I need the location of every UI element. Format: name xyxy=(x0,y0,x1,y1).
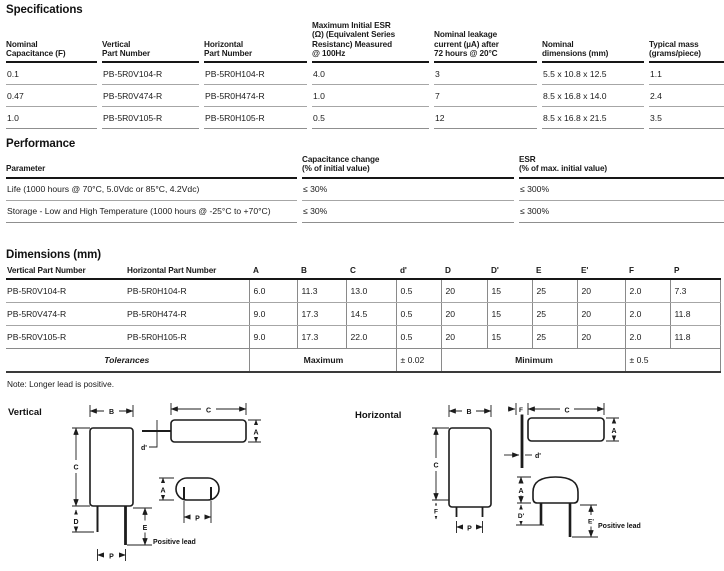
dimensions-title: Dimensions (mm) xyxy=(6,249,719,261)
dimensions-cell: 0.5 xyxy=(396,325,441,348)
dimensions-col-header: E xyxy=(532,266,577,279)
dimensions-cell: 25 xyxy=(532,302,577,325)
specifications-cell: 0.1 xyxy=(6,63,97,85)
dimensions-cell: 13.0 xyxy=(346,279,396,303)
dimensions-cell: PB-5R0H474-R xyxy=(123,302,249,325)
dimensions-col-header: B xyxy=(297,266,346,279)
dim-label-d: D xyxy=(73,519,78,526)
performance-cell: Life (1000 hours @ 70°C, 5.0Vdc or 85°C,… xyxy=(6,179,297,201)
dimensions-cell: PB-5R0V105-R xyxy=(6,325,123,348)
specifications-col-header: Nominal Capacitance (F) xyxy=(6,21,97,63)
vertical-side-view: d' C A xyxy=(141,402,262,452)
performance-title: Performance xyxy=(6,138,719,150)
horizontal-diagram: B C F P F xyxy=(420,395,724,571)
dimensions-cell: 17.3 xyxy=(297,302,346,325)
specifications-cell: PB-5R0H474-R xyxy=(204,85,307,107)
specifications-cell: 8.5 x 16.8 x 21.5 xyxy=(542,107,644,129)
dim-label-c: C xyxy=(433,462,438,469)
performance-cell: ≤ 300% xyxy=(519,201,724,223)
dimensions-cell: 20 xyxy=(441,302,487,325)
specifications-col-header: Horizontal Part Number xyxy=(204,21,307,63)
dimensions-cell: 20 xyxy=(441,325,487,348)
dimension-diagrams: Vertical Horizontal B C xyxy=(6,395,719,571)
dimensions-cell: 20 xyxy=(577,302,625,325)
dim-label-a: A xyxy=(518,488,523,495)
dimensions-cell: 20 xyxy=(577,325,625,348)
specifications-col-header: Maximum Initial ESR (Ω) (Equivalent Seri… xyxy=(312,21,429,63)
dimensions-cell: 2.0 xyxy=(625,279,670,303)
performance-col-header: ESR (% of max. initial value) xyxy=(519,155,724,179)
dimensions-cell: PB-5R0H105-R xyxy=(123,325,249,348)
dimensions-col-header: Vertical Part Number xyxy=(6,266,123,279)
dimensions-cell: 15 xyxy=(487,302,532,325)
dimensions-cell: 9.0 xyxy=(249,325,297,348)
dimensions-cell: 25 xyxy=(532,279,577,303)
specifications-cell: PB-5R0V104-R xyxy=(102,63,199,85)
performance-cell: ≤ 30% xyxy=(302,179,514,201)
dimensions-cell: 17.3 xyxy=(297,325,346,348)
dimensions-col-header: C xyxy=(346,266,396,279)
dimensions-col-header: P xyxy=(670,266,720,279)
specifications-col-header: Typical mass (grams/piece) xyxy=(649,21,724,63)
dimensions-col-header: E' xyxy=(577,266,625,279)
dim-label-e: E xyxy=(143,525,148,532)
dimensions-cell: 9.0 xyxy=(249,302,297,325)
page: Specifications Nominal Capacitance (F)Ve… xyxy=(0,0,724,571)
horizontal-bottom-view: A D' E' Positive lead xyxy=(513,477,641,537)
dimensions-cell: PB-5R0H104-R xyxy=(123,279,249,303)
dimensions-col-header: d' xyxy=(396,266,441,279)
performance-table: ParameterCapacitance change (% of initia… xyxy=(1,155,724,223)
specifications-cell: 3 xyxy=(434,63,537,85)
dimensions-tolerance-d_tolerance: ± 0.02 xyxy=(396,348,441,372)
specifications-table: Nominal Capacitance (F)Vertical Part Num… xyxy=(1,21,724,129)
specifications-col-header: Vertical Part Number xyxy=(102,21,199,63)
dimensions-table: Vertical Part NumberHorizontal Part Numb… xyxy=(6,266,721,373)
performance-col-header: Parameter xyxy=(6,155,297,179)
specifications-cell: PB-5R0H105-R xyxy=(204,107,307,129)
dimensions-col-header: F xyxy=(625,266,670,279)
dimensions-col-header: Horizontal Part Number xyxy=(123,266,249,279)
dimensions-cell: 7.3 xyxy=(670,279,720,303)
dimensions-cell: PB-5R0V104-R xyxy=(6,279,123,303)
dimensions-cell: 2.0 xyxy=(625,325,670,348)
specifications-cell: 12 xyxy=(434,107,537,129)
specifications-cell: 3.5 xyxy=(649,107,724,129)
performance-cell: ≤ 300% xyxy=(519,179,724,201)
dimensions-col-header: A xyxy=(249,266,297,279)
specifications-cell: 4.0 xyxy=(312,63,429,85)
performance-cell: Storage - Low and High Temperature (1000… xyxy=(6,201,297,223)
dim-label-p: P xyxy=(109,553,114,560)
dimensions-cell: 6.0 xyxy=(249,279,297,303)
dimensions-col-header: D' xyxy=(487,266,532,279)
dimensions-tolerance-label: Tolerances xyxy=(6,348,249,372)
dimensions-cell: 15 xyxy=(487,325,532,348)
dimensions-col-header: D xyxy=(441,266,487,279)
dim-label-f: F xyxy=(434,508,438,515)
specifications-cell: 0.47 xyxy=(6,85,97,107)
specifications-cell: 1.1 xyxy=(649,63,724,85)
dimensions-tolerance-fp_tolerance: ± 0.5 xyxy=(625,348,720,372)
dim-label-d-prime: d' xyxy=(535,453,541,460)
dimensions-cell: 0.5 xyxy=(396,302,441,325)
specifications-cell: 7 xyxy=(434,85,537,107)
specifications-cell: 0.5 xyxy=(312,107,429,129)
dim-label-b: B xyxy=(109,409,114,416)
dim-label-d-prime: d' xyxy=(141,445,147,452)
dimensions-cell: 25 xyxy=(532,325,577,348)
dim-label-p: P xyxy=(467,525,472,532)
dimensions-cell: 20 xyxy=(577,279,625,303)
performance-cell: ≤ 30% xyxy=(302,201,514,223)
dim-label-d2: D' xyxy=(518,513,525,520)
dimensions-cell: 11.8 xyxy=(670,325,720,348)
vertical-bottom-view: A P xyxy=(157,478,220,524)
dim-label-p: P xyxy=(195,515,200,522)
dimensions-cell: 20 xyxy=(441,279,487,303)
specifications-cell: 2.4 xyxy=(649,85,724,107)
dim-label-a: A xyxy=(611,428,616,435)
specifications-cell: PB-5R0H104-R xyxy=(204,63,307,85)
specifications-cell: 5.5 x 10.8 x 12.5 xyxy=(542,63,644,85)
vertical-diagram-label: Vertical xyxy=(8,407,42,418)
dimensions-cell: 22.0 xyxy=(346,325,396,348)
specifications-col-header: Nominal leakage current (µA) after 72 ho… xyxy=(434,21,537,63)
specifications-col-header: Nominal dimensions (mm) xyxy=(542,21,644,63)
horizontal-front-view: B C F P xyxy=(430,404,492,533)
specifications-cell: PB-5R0V474-R xyxy=(102,85,199,107)
datasheet-page: { "specifications": { "title": "Specific… xyxy=(0,0,724,542)
dimensions-cell: PB-5R0V474-R xyxy=(6,302,123,325)
specifications-title: Specifications xyxy=(6,4,719,16)
dim-label-c: C xyxy=(564,407,569,414)
dimensions-cell: 2.0 xyxy=(625,302,670,325)
dim-label-a: A xyxy=(160,487,165,494)
performance-col-header: Capacitance change (% of initial value) xyxy=(302,155,514,179)
positive-lead-label: Positive lead xyxy=(598,523,641,530)
vertical-diagram: B C D E P Positive lead xyxy=(64,395,374,571)
dim-label-f: F xyxy=(519,407,523,414)
dimensions-tolerance-max_label: Maximum xyxy=(249,348,396,372)
dimensions-cell: 15 xyxy=(487,279,532,303)
note-longer-lead: Note: Longer lead is positive. xyxy=(7,379,719,389)
dim-label-e2: E' xyxy=(588,518,594,525)
dim-label-b: B xyxy=(466,409,471,416)
positive-lead-label: Positive lead xyxy=(153,539,196,546)
dim-label-c: C xyxy=(206,407,211,414)
dimensions-cell: 11.3 xyxy=(297,279,346,303)
specifications-cell: 1.0 xyxy=(312,85,429,107)
dimensions-tolerance-min_label: Minimum xyxy=(441,348,625,372)
dim-label-a: A xyxy=(253,429,258,436)
specifications-cell: 1.0 xyxy=(6,107,97,129)
specifications-cell: 8.5 x 16.8 x 14.0 xyxy=(542,85,644,107)
horizontal-side-view: F C A d' xyxy=(504,402,621,468)
dimensions-cell: 14.5 xyxy=(346,302,396,325)
dim-label-c: C xyxy=(73,464,78,471)
dimensions-cell: 11.8 xyxy=(670,302,720,325)
specifications-cell: PB-5R0V105-R xyxy=(102,107,199,129)
dimensions-cell: 0.5 xyxy=(396,279,441,303)
